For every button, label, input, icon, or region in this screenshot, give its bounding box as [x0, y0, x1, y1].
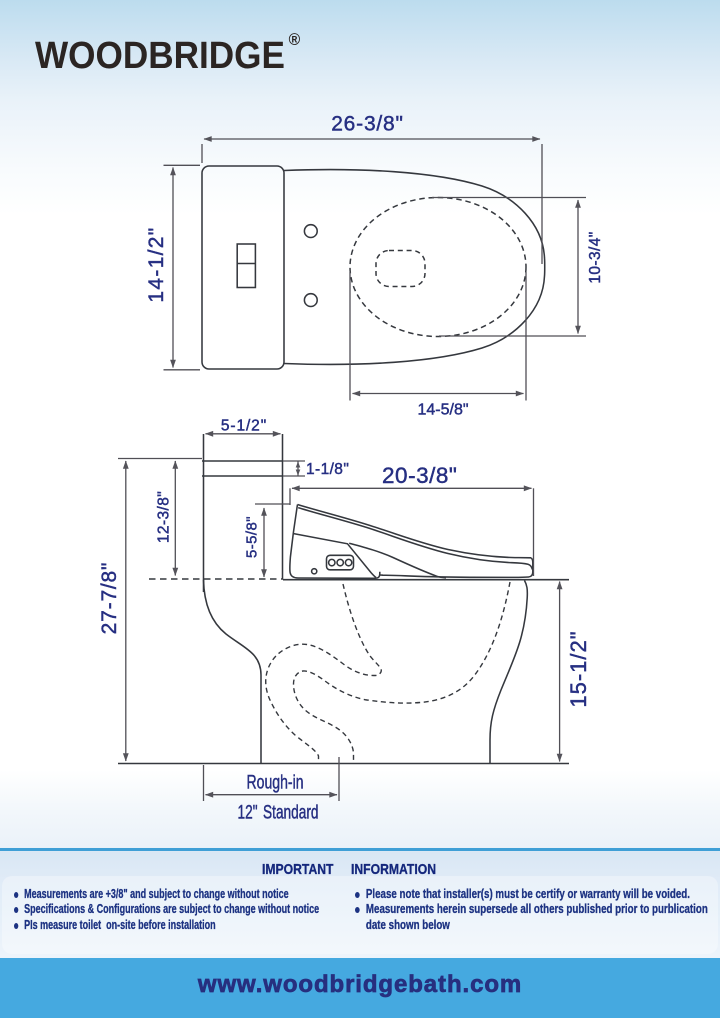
svg-text:15-1/2": 15-1/2": [566, 630, 591, 707]
svg-text:12" Standard: 12" Standard: [237, 801, 318, 823]
svg-text:5-5/8": 5-5/8": [244, 516, 261, 558]
svg-text:14-5/8": 14-5/8": [417, 402, 468, 419]
svg-text:27-7/8": 27-7/8": [98, 562, 121, 635]
svg-text:Rough-in: Rough-in: [246, 771, 303, 793]
svg-text:10-3/4": 10-3/4": [587, 231, 604, 283]
svg-text:20-3/8": 20-3/8": [382, 463, 457, 488]
svg-text:14-1/2": 14-1/2": [145, 226, 168, 302]
svg-text:12-3/8": 12-3/8": [156, 491, 173, 543]
svg-text:5-1/2": 5-1/2": [221, 418, 267, 435]
svg-text:1-1/8": 1-1/8": [306, 461, 349, 478]
svg-text:26-3/8": 26-3/8": [331, 113, 404, 136]
